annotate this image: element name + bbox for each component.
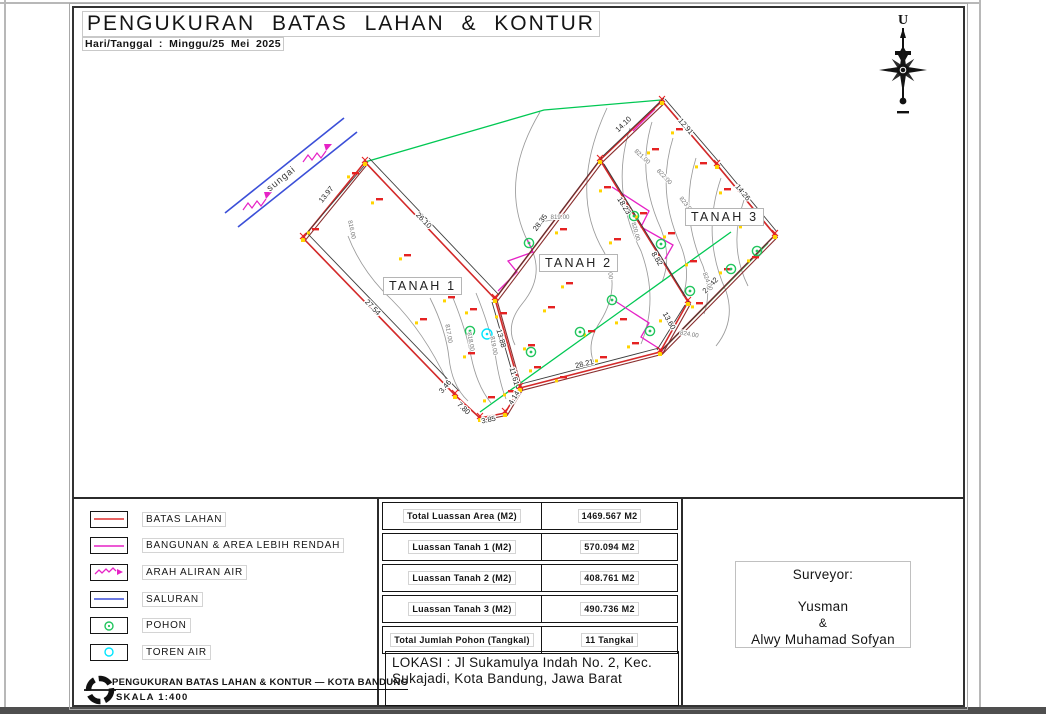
legend-label: TOREN AIR bbox=[142, 645, 211, 660]
legend-item-arah-aliran-air: ARAH ALIRAN AIR bbox=[90, 559, 344, 586]
legend-label: BATAS LAHAN bbox=[142, 512, 226, 527]
page-edge-bottom bbox=[0, 707, 1046, 714]
legend-table-divider bbox=[377, 497, 379, 705]
page-edge-right bbox=[979, 0, 981, 708]
table-cell-label: Total Luassan Area (M2) bbox=[403, 509, 521, 523]
table-row: Luassan Tanah 2 (M2) 408.761 M2 bbox=[382, 564, 678, 592]
legend: BATAS LAHAN BANGUNAN & AREA LEBIH RENDAH… bbox=[90, 506, 344, 666]
page-edge-top bbox=[0, 2, 981, 4]
footer-title: PENGUKURAN BATAS LAHAN & KONTUR — KOTA B… bbox=[112, 677, 408, 690]
surveyor-name-2: Alwy Muhamad Sofyan bbox=[736, 631, 910, 649]
table-cell-label: Luassan Tanah 1 (M2) bbox=[408, 540, 515, 554]
magenta-line-icon bbox=[90, 537, 128, 554]
red-line-icon bbox=[90, 511, 128, 528]
surveyor-name-1: Yusman bbox=[736, 598, 910, 616]
flow-arrow-icon bbox=[90, 564, 128, 581]
table-surveyor-divider bbox=[681, 497, 683, 705]
surveyor-box: Surveyor: Yusman & Alwy Muhamad Sofyan bbox=[735, 561, 911, 648]
table-cell-label: Luassan Tanah 2 (M2) bbox=[408, 571, 515, 585]
section-divider bbox=[73, 497, 964, 499]
table-cell-label: Luassan Tanah 3 (M2) bbox=[408, 602, 515, 616]
compass-north-label: U bbox=[898, 13, 908, 28]
date-line: Hari/Tanggal : Minggu/25 Mei 2025 bbox=[82, 37, 284, 51]
tree-icon bbox=[90, 617, 128, 634]
legend-item-pohon: POHON bbox=[90, 612, 344, 639]
surveyor-ampersand: & bbox=[736, 616, 910, 632]
footer-scale: SKALA 1:400 bbox=[116, 692, 189, 703]
page-edge-left bbox=[4, 0, 6, 708]
parcel-label-tanah-3: TANAH 3 bbox=[685, 208, 764, 226]
table-cell-label: Total Jumlah Pohon (Tangkal) bbox=[390, 633, 534, 647]
legend-label: SALURAN bbox=[142, 592, 203, 607]
water-tank-legend-icon bbox=[90, 644, 128, 661]
legend-label: BANGUNAN & AREA LEBIH RENDAH bbox=[142, 538, 344, 553]
legend-label: ARAH ALIRAN AIR bbox=[142, 565, 247, 580]
legend-label: POHON bbox=[142, 618, 191, 633]
table-cell-value: 490.736 M2 bbox=[580, 602, 639, 616]
location-box: LOKASI : Jl Sukamulya Indah No. 2, Kec. … bbox=[385, 651, 679, 706]
legend-item-batas-lahan: BATAS LAHAN bbox=[90, 506, 344, 533]
page-title: PENGUKURAN BATAS LAHAN & KONTUR bbox=[82, 11, 600, 37]
legend-item-saluran: SALURAN bbox=[90, 586, 344, 613]
table-cell-value: 570.094 M2 bbox=[580, 540, 639, 554]
parcel-label-tanah-1: TANAH 1 bbox=[383, 277, 462, 295]
compass-icon: U bbox=[868, 8, 938, 120]
compass-south-tick bbox=[897, 111, 909, 113]
blue-line-icon bbox=[90, 591, 128, 608]
table-cell-value: 408.761 M2 bbox=[580, 571, 639, 585]
table-cell-value: 11 Tangkal bbox=[581, 633, 637, 647]
table-row: Luassan Tanah 3 (M2) 490.736 M2 bbox=[382, 595, 678, 623]
table-row: Total Luassan Area (M2) 1469.567 M2 bbox=[382, 502, 678, 530]
table-row: Luassan Tanah 1 (M2) 570.094 M2 bbox=[382, 533, 678, 561]
compass-rose: U bbox=[868, 8, 938, 120]
area-summary-table: Total Luassan Area (M2) 1469.567 M2 Luas… bbox=[382, 502, 679, 657]
table-row: Total Jumlah Pohon (Tangkal) 11 Tangkal bbox=[382, 626, 678, 654]
surveyor-heading: Surveyor: bbox=[736, 567, 910, 582]
parcel-label-tanah-2: TANAH 2 bbox=[539, 254, 618, 272]
table-cell-value: 1469.567 M2 bbox=[578, 509, 642, 523]
survey-sheet: PENGUKURAN BATAS LAHAN & KONTUR Hari/Tan… bbox=[0, 0, 1046, 720]
legend-item-toren-air: TOREN AIR bbox=[90, 639, 344, 666]
legend-item-bangunan: BANGUNAN & AREA LEBIH RENDAH bbox=[90, 533, 344, 560]
